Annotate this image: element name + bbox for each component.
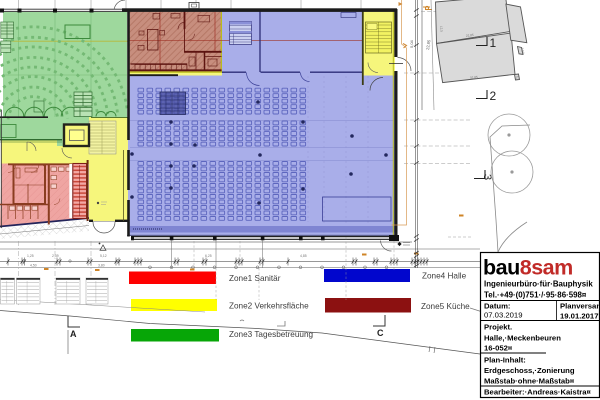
- svg-text:Halle,·Meckenbeuren: Halle,·Meckenbeuren: [484, 334, 561, 343]
- svg-text:Zone2 Verkehrsfläche: Zone2 Verkehrsfläche: [229, 302, 309, 311]
- svg-text:1,25: 1,25: [27, 254, 34, 258]
- svg-text:Erdgeschoss,·Zonierung: Erdgeschoss,·Zonierung: [484, 366, 575, 375]
- svg-text:Plan-Inhalt:: Plan-Inhalt:: [484, 356, 526, 365]
- svg-text:07.03.2019: 07.03.2019: [484, 311, 522, 320]
- svg-text:Bearbeiter:·Andreas·Kaistra¤: Bearbeiter:·Andreas·Kaistra¤: [484, 388, 592, 397]
- svg-text:Tel.·+49·(0)751·/·95·86·598¤: Tel.·+49·(0)751·/·95·86·598¤: [484, 291, 587, 300]
- svg-text:3,80: 3,80: [98, 264, 105, 268]
- svg-text:5,12: 5,12: [100, 254, 107, 258]
- svg-text:C: C: [377, 328, 384, 338]
- svg-text:Ingenieurbüro·für·Bauphysik: Ingenieurbüro·für·Bauphysik: [484, 280, 593, 289]
- svg-text:Zone1 Sanitär: Zone1 Sanitär: [229, 274, 281, 283]
- svg-text:4,50: 4,50: [30, 264, 37, 268]
- svg-text:6,25: 6,25: [205, 254, 212, 258]
- svg-text:2: 2: [490, 89, 497, 103]
- svg-text:12,5: 12,5: [439, 26, 444, 33]
- svg-text:4,85: 4,85: [300, 254, 307, 258]
- svg-text:Maßstab·ohne·Maßstab¤: Maßstab·ohne·Maßstab¤: [484, 377, 575, 386]
- svg-text:Projekt.: Projekt.: [484, 323, 512, 332]
- svg-text:Datum:: Datum:: [484, 302, 510, 311]
- svg-text:Zone4 Halle: Zone4 Halle: [422, 272, 467, 281]
- svg-text:5,04: 5,04: [409, 39, 414, 48]
- svg-text:2,39: 2,39: [52, 254, 59, 258]
- svg-text:bau8sam: bau8sam: [483, 256, 573, 280]
- svg-text:Planversand: Planversand: [560, 302, 600, 311]
- svg-text:A: A: [70, 329, 77, 339]
- svg-text:16-052¤: 16-052¤: [484, 344, 513, 353]
- svg-text:1: 1: [490, 36, 497, 50]
- svg-text:Zone5 Küche: Zone5 Küche: [421, 302, 470, 311]
- svg-text:19.01.2017: 19.01.2017: [560, 312, 598, 321]
